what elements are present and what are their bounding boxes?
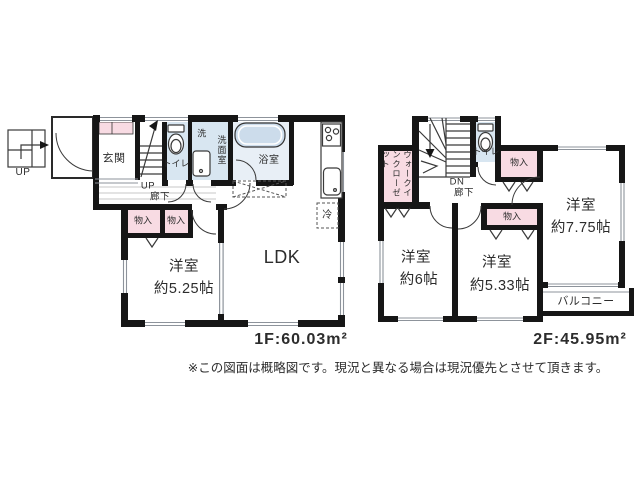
staircase-1f bbox=[140, 120, 162, 177]
label-room1-2f: 洋室 bbox=[401, 251, 431, 266]
label-fridge: 冷 bbox=[322, 211, 333, 221]
label-storage-1: 物入 bbox=[134, 217, 152, 226]
label-ldk: LDK bbox=[264, 248, 301, 266]
label-toilet-2f: トイレ bbox=[472, 148, 499, 157]
label-washroom: 洗面室 bbox=[217, 135, 226, 165]
label-porch-up: UP bbox=[16, 168, 31, 178]
sink-icon bbox=[324, 168, 341, 195]
label-storage-3: 物入 bbox=[510, 159, 528, 168]
washbasin-icon bbox=[193, 151, 210, 176]
kitchen-counter bbox=[321, 122, 342, 198]
label-toilet-1f: トイレ bbox=[162, 160, 189, 169]
label-room1-size: 約6帖 bbox=[400, 273, 439, 288]
label-laundry: 洗 bbox=[197, 130, 207, 139]
toilet-icon-1f bbox=[168, 125, 184, 154]
label-area-1f: 1F:60.03m² bbox=[254, 332, 348, 348]
label-up-1f: UP bbox=[141, 181, 155, 191]
label-hall-2f: 廊下 bbox=[454, 188, 474, 198]
bathtub-icon bbox=[235, 123, 285, 147]
floorplan-graphics bbox=[0, 0, 640, 480]
label-room3-size: 約7.75帖 bbox=[551, 221, 611, 236]
label-room-1f: 洋室 bbox=[169, 260, 199, 275]
label-room2-size: 約5.33帖 bbox=[470, 279, 530, 294]
stove-icon bbox=[323, 124, 341, 146]
label-room2-2f: 洋室 bbox=[482, 256, 512, 271]
label-room3-2f: 洋室 bbox=[566, 199, 596, 214]
label-genkan: 玄関 bbox=[103, 154, 126, 165]
label-hall-1f: 廊下 bbox=[150, 192, 170, 202]
label-room-size-1f: 約5.25帖 bbox=[154, 282, 214, 297]
disclaimer-note: ※この図面は概略図です。現況と異なる場合は現況優先とさせて頂きます。 bbox=[188, 362, 608, 375]
label-wic: ウォークインクローゼット bbox=[380, 150, 413, 202]
staircase-2f bbox=[419, 118, 470, 177]
sliding-door bbox=[217, 243, 225, 314]
label-balcony: バルコニー bbox=[557, 297, 614, 308]
label-dn: DN bbox=[450, 177, 465, 187]
genkan-closet bbox=[99, 122, 133, 134]
label-storage-2: 物入 bbox=[167, 217, 185, 226]
label-area-2f: 2F:45.95m² bbox=[533, 332, 627, 348]
label-storage-4: 物入 bbox=[503, 213, 521, 222]
closet-door-mark bbox=[146, 238, 158, 247]
label-bath: 浴室 bbox=[259, 156, 280, 166]
floorplan-page: 玄関 トイレ 洗 洗面室 浴室 UP 廊下 UP 物入 物入 洋室 約5.25帖… bbox=[0, 0, 640, 480]
